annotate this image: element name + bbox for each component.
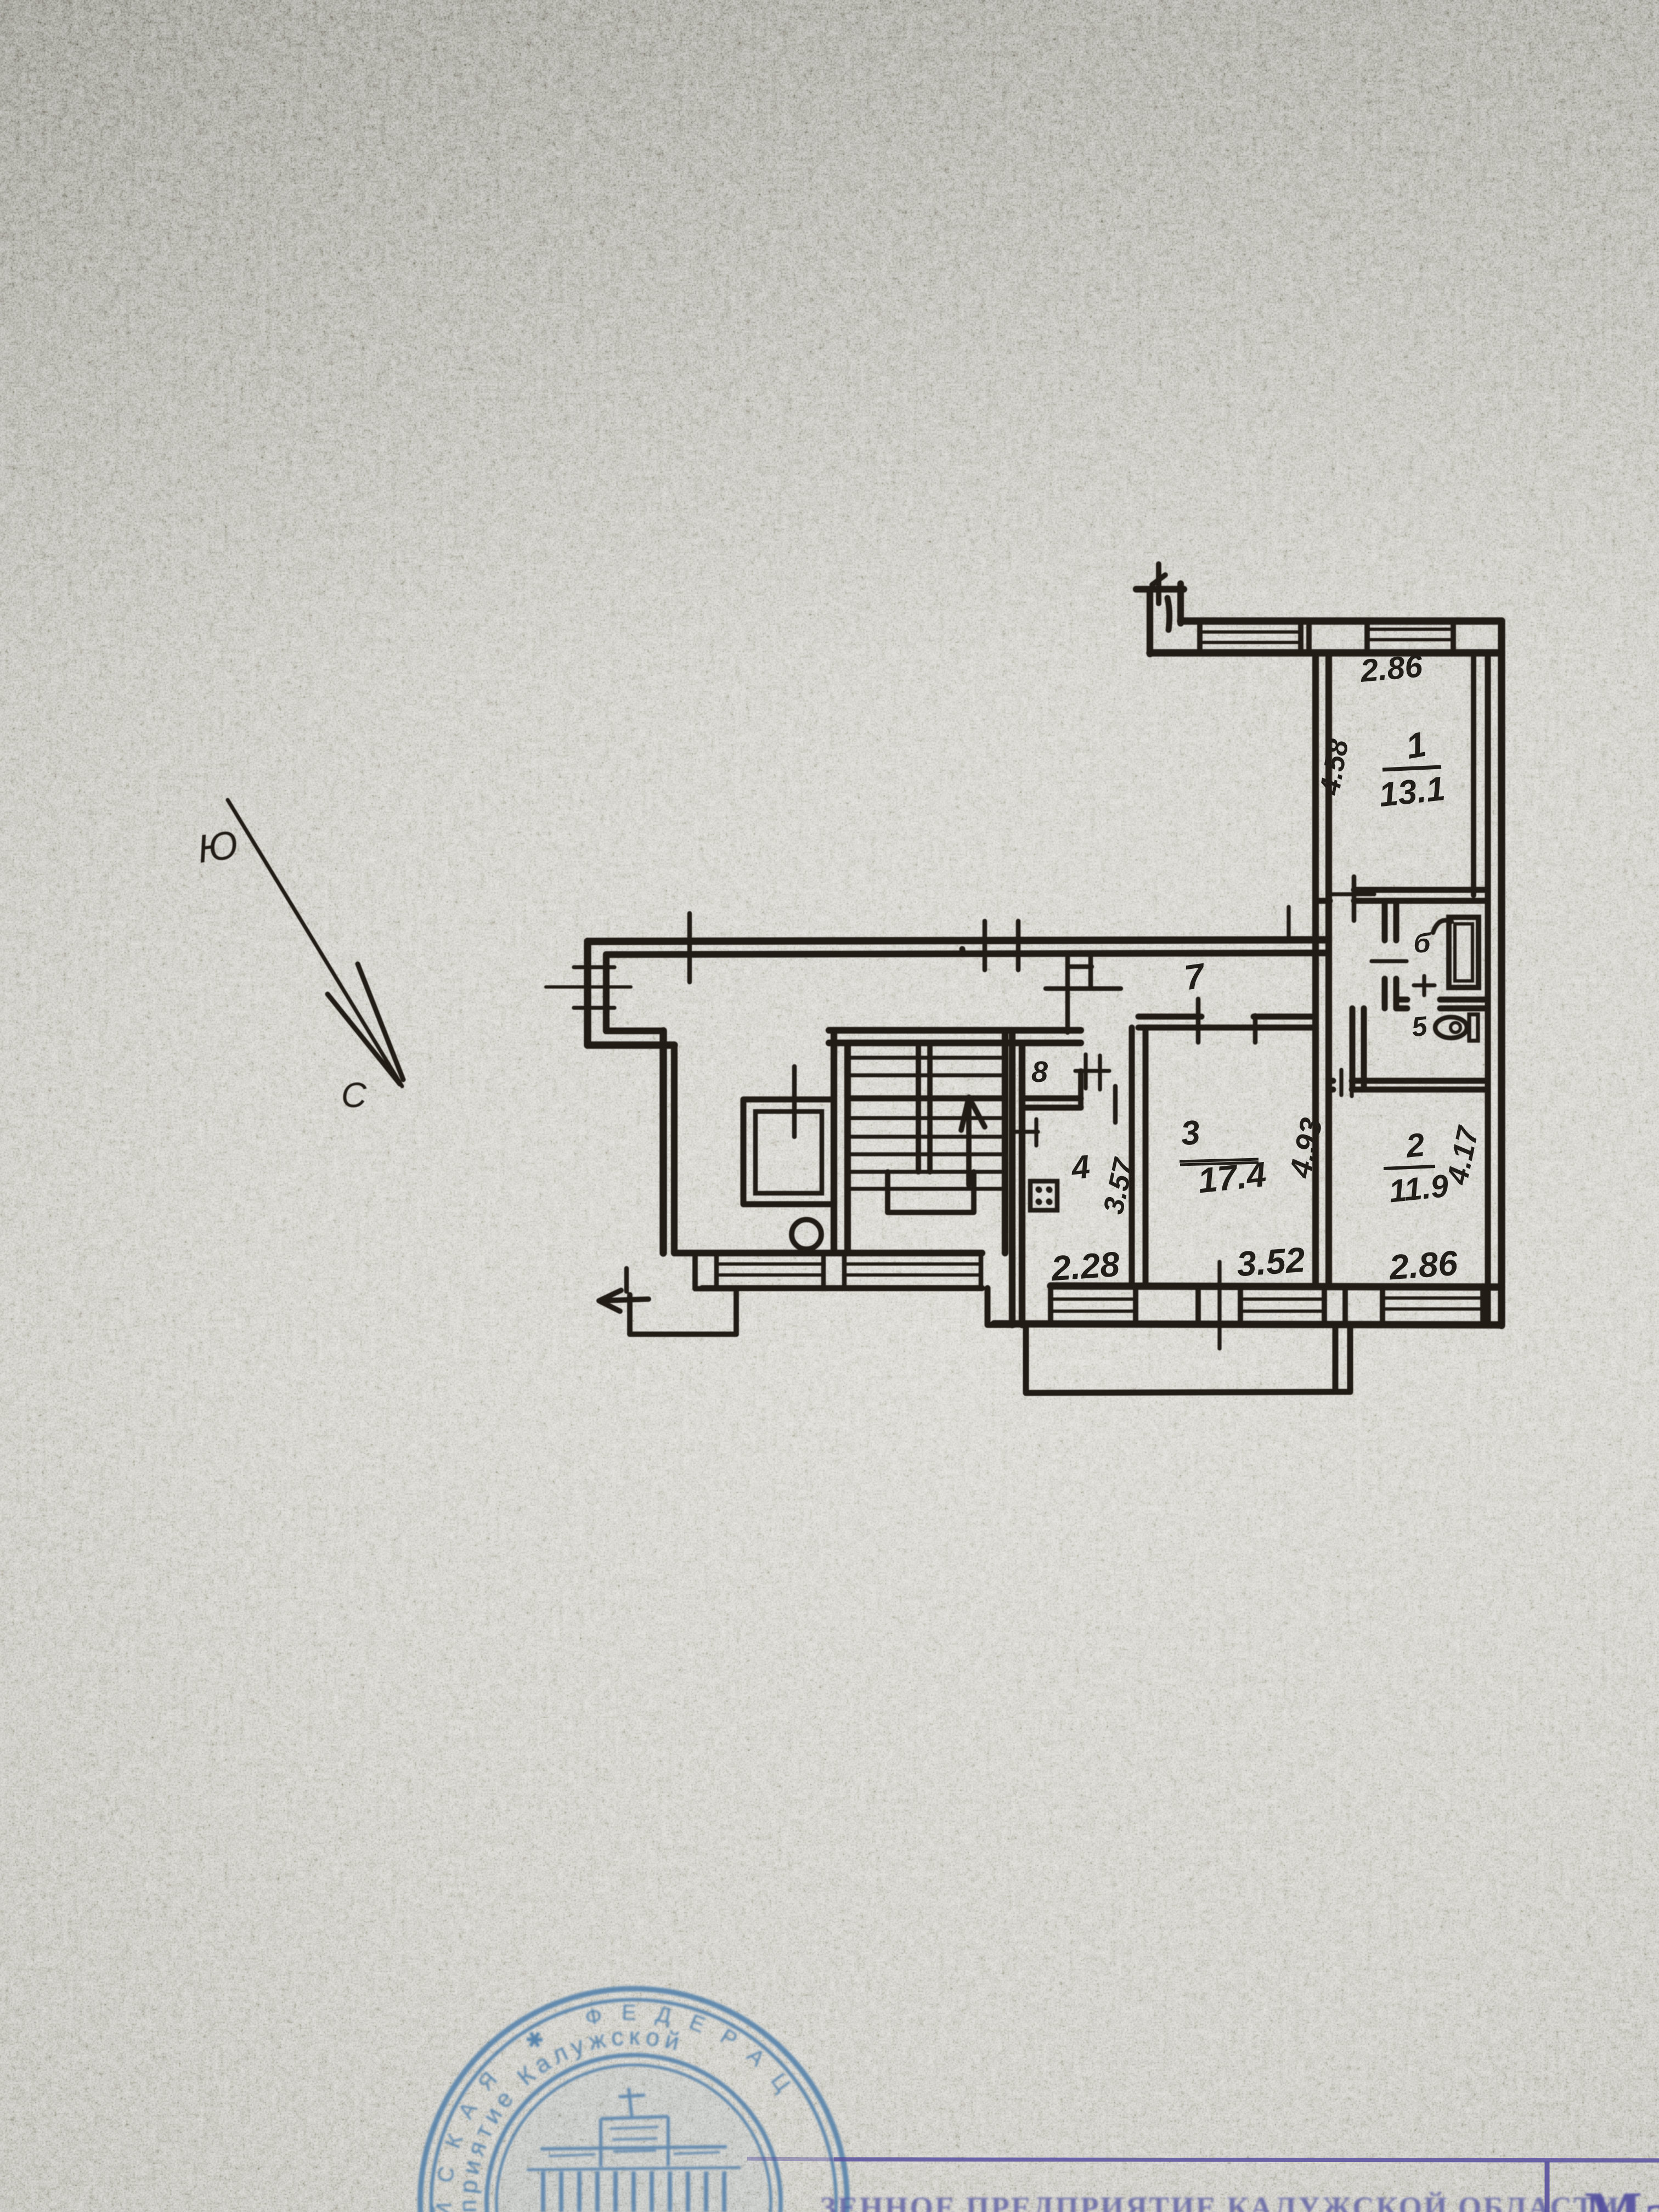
svg-text:2.86: 2.86 [1387, 1243, 1459, 1288]
svg-text:2.86: 2.86 [1358, 648, 1424, 689]
svg-text:Ю: Ю [195, 822, 241, 871]
svg-text:3: 3 [1179, 1113, 1202, 1153]
svg-text:С: С [341, 1075, 367, 1115]
svg-text:3.52: 3.52 [1235, 1240, 1306, 1284]
svg-text:2.28: 2.28 [1049, 1244, 1121, 1289]
svg-text:ЗЕННОЕ ПРЕДПРИЯТИЕ КАЛУЖСКОЙ О: ЗЕННОЕ ПРЕДПРИЯТИЕ КАЛУЖСКОЙ ОБЛАСТИ [820, 2191, 1621, 2212]
svg-text:б: б [1414, 928, 1432, 958]
svg-text:4: 4 [1069, 1148, 1092, 1187]
svg-text:13.1: 13.1 [1377, 770, 1447, 814]
svg-text:8: 8 [1031, 1056, 1048, 1088]
svg-text:2: 2 [1404, 1126, 1426, 1165]
svg-text:Мас: Мас [1584, 2180, 1659, 2212]
svg-text:11.9: 11.9 [1387, 1168, 1451, 1210]
svg-text:17.4: 17.4 [1196, 1154, 1268, 1201]
